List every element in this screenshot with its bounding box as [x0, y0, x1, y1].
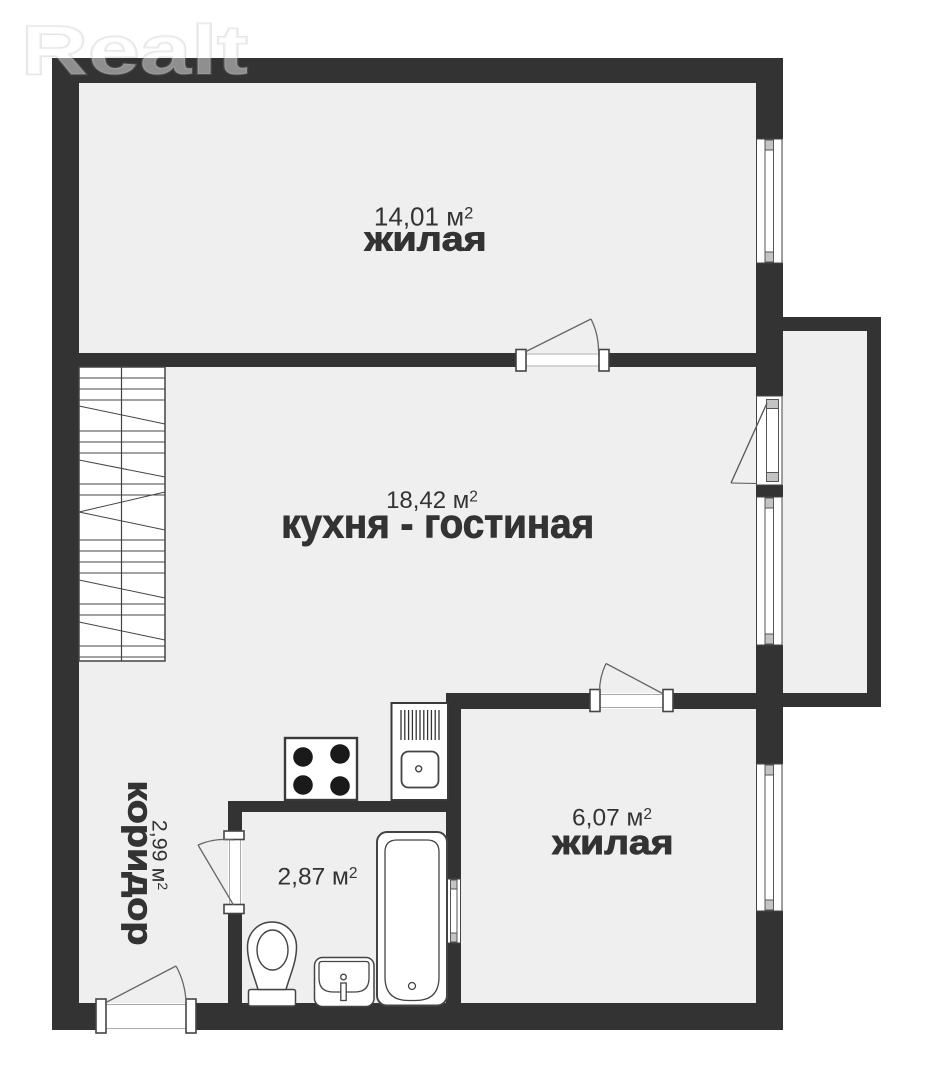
svg-text:жилая: жилая: [363, 221, 486, 259]
svg-text:Realt: Realt: [21, 11, 248, 89]
svg-text:2,87 м2: 2,87 м2: [278, 864, 358, 891]
svg-text:2,99 м2: 2,99 м2: [148, 820, 172, 891]
svg-text:жилая: жилая: [551, 824, 673, 862]
svg-text:кухня - гостиная: кухня - гостиная: [281, 501, 594, 547]
